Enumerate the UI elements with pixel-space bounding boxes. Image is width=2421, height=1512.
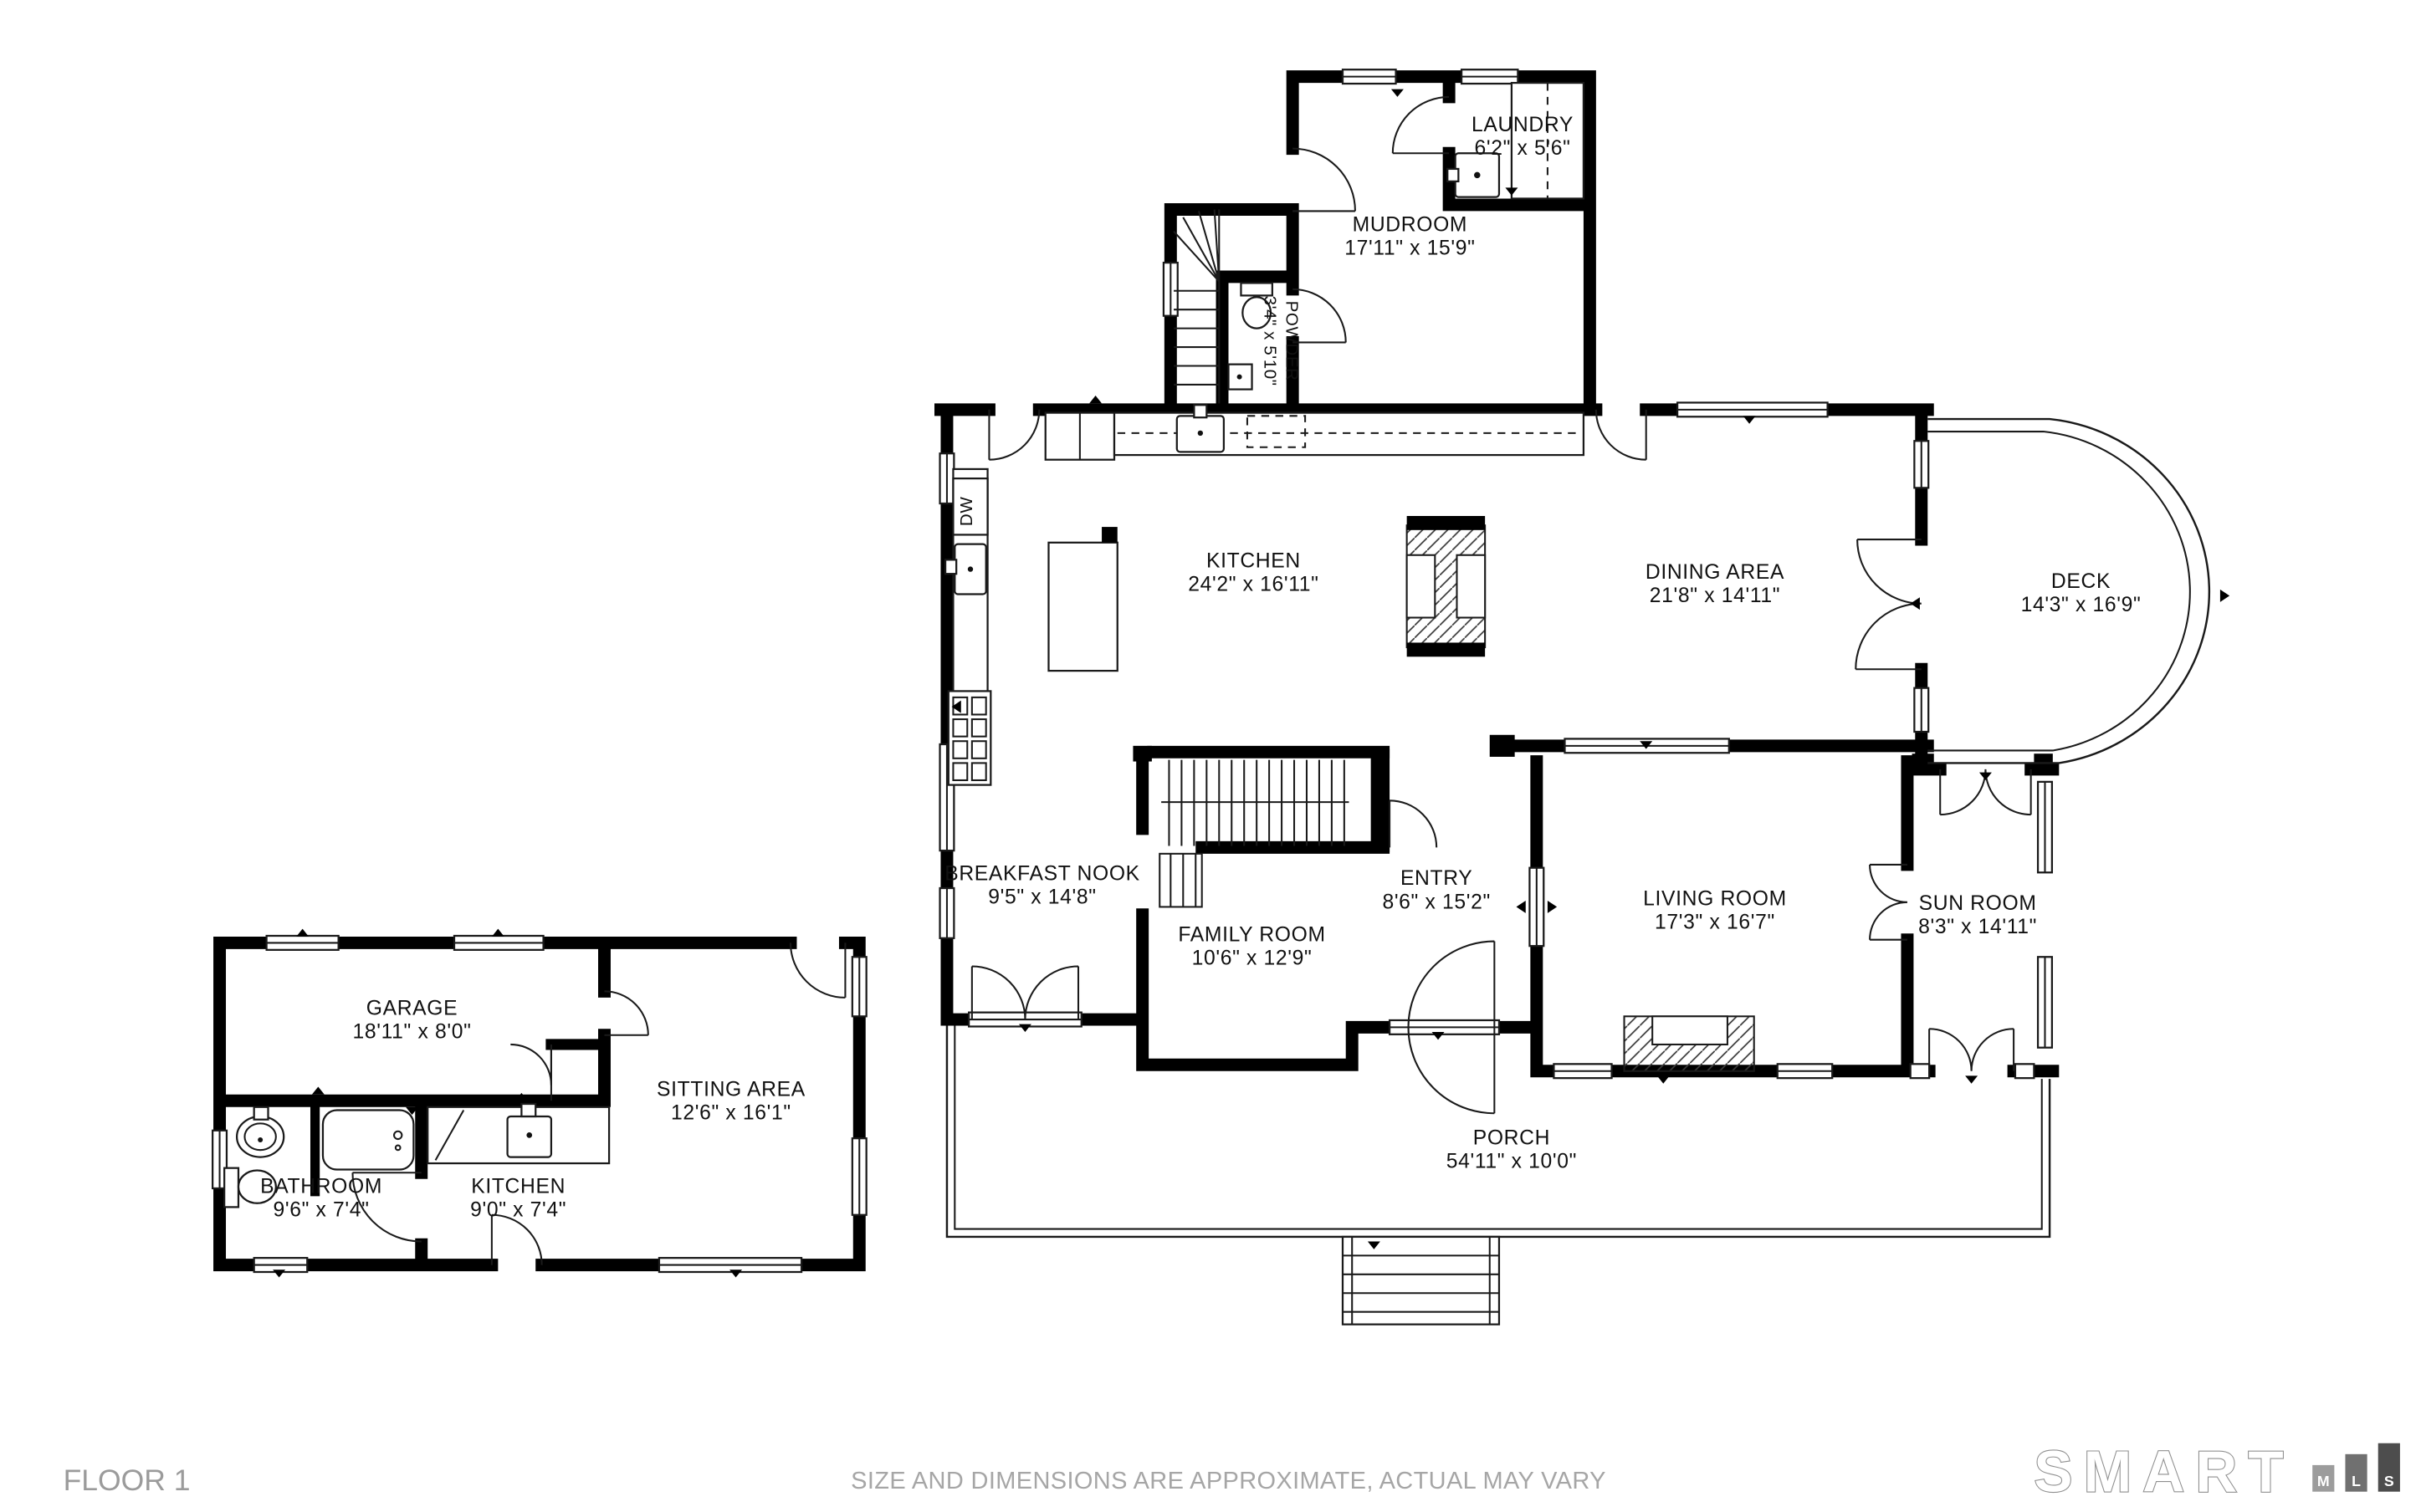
svg-text:DECK: DECK [2051,570,2111,593]
svg-text:BREAKFAST NOOK: BREAKFAST NOOK [944,863,1140,886]
window-icon [1914,688,1928,732]
svg-text:FAMILY ROOM: FAMILY ROOM [1178,924,1325,947]
door-arc [604,991,647,1034]
bathtub-icon [323,1110,413,1169]
window-icon [2015,1064,2034,1078]
svg-text:18'11" x 8'0": 18'11" x 8'0" [353,1020,472,1043]
floor-plan-page: DW [0,0,2421,1512]
window-icon [454,936,544,950]
room-label-bathroom: BATHROOM 9'6" x 7'4" [260,1176,382,1222]
cased-opening [1529,868,1543,946]
porch-steps-icon [1343,1237,1499,1325]
svg-text:9'0" x 7'4": 9'0" x 7'4" [470,1199,566,1222]
floor-label: FLOOR 1 [64,1463,191,1497]
window-icon [940,888,955,938]
dishwasher-icon: DW [953,478,987,534]
svg-text:KITCHEN: KITCHEN [1206,550,1301,573]
disclaimer-text: SIZE AND DIMENSIONS ARE APPROXIMATE, ACT… [851,1468,1606,1494]
svg-text:DINING AREA: DINING AREA [1646,561,1784,584]
room-label-kitchen: KITCHEN 24'2" x 16'11" [1188,550,1318,596]
svg-text:3'4" x 5'10": 3'4" x 5'10" [1261,296,1280,386]
svg-text:LIVING ROOM: LIVING ROOM [1643,888,1787,911]
room-label-garage: GARAGE 18'11" x 8'0" [353,997,472,1043]
french-doors-sunroom [1870,865,1907,940]
svg-text:17'3" x 16'7": 17'3" x 16'7" [1655,912,1775,934]
window-icon [2038,957,2052,1047]
smart-wordmark: SMART [2034,1439,2294,1504]
main-staircase-icon [1161,760,1349,846]
room-label-sitting-area: SITTING AREA 12'6" x 16'1" [657,1079,806,1125]
svg-text:54'11" x 10'0": 54'11" x 10'0" [1446,1151,1577,1173]
svg-text:17'11" x 15'9": 17'11" x 15'9" [1344,238,1475,260]
bathroom-sink-icon [237,1107,284,1157]
svg-text:LAUNDRY: LAUNDRY [1472,114,1574,136]
svg-text:POWDER: POWDER [1282,301,1302,381]
svg-text:6'2" x 5'6": 6'2" x 5'6" [1474,137,1570,160]
room-label-dining: DINING AREA 21'8" x 14'11" [1646,561,1784,607]
svg-text:21'8" x 14'11": 21'8" x 14'11" [1650,585,1780,607]
door-arc [1596,410,1646,460]
chimney-fireplace-icon [1407,516,1485,656]
smartmls-logo: SMART M L S [2034,1439,2400,1504]
room-label-kitchen2: KITCHEN 9'0" x 7'4" [470,1176,566,1222]
mls-letter-l: L [2352,1473,2361,1489]
svg-text:SUN ROOM: SUN ROOM [1919,892,2037,915]
svg-text:14'3" x 16'9": 14'3" x 16'9" [2021,594,2142,616]
room-label-sun-room: SUN ROOM 8'3" x 14'11" [1918,892,2037,938]
room-label-powder: POWDER 3'4" x 5'10" [1261,296,1302,386]
svg-text:MUDROOM: MUDROOM [1353,214,1468,237]
door-arc [1393,97,1449,153]
room-label-living-room: LIVING ROOM 17'3" x 16'7" [1643,888,1787,934]
wall-post [1490,735,1515,757]
kitchen-island-icon [1048,527,1117,671]
living-room-fireplace-icon [1625,1016,1754,1070]
mls-letter-m: M [2317,1473,2330,1489]
door-arc [492,1215,542,1265]
room-label-deck: DECK 14'3" x 16'9" [2021,570,2142,616]
svg-text:10'6" x 12'9": 10'6" x 12'9" [1192,948,1313,970]
window-icon [1553,1064,1611,1078]
window-icon [2038,782,2052,872]
door-arc [1292,149,1355,212]
mls-letter-s: S [2384,1473,2394,1489]
window-icon [1461,69,1518,84]
floor-plan-svg: DW [0,0,2421,1512]
svg-text:PORCH: PORCH [1473,1127,1550,1150]
svg-text:12'6" x 16'1": 12'6" x 16'1" [671,1102,791,1125]
svg-text:BATHROOM: BATHROOM [260,1176,382,1198]
window-icon [940,453,955,503]
room-labels: LAUNDRY 6'2" x 5'6" MUDROOM 17'11" x 15'… [260,114,2141,1222]
doors-main [972,97,2031,1113]
svg-text:9'5" x 14'8": 9'5" x 14'8" [988,886,1096,909]
french-doors-breakfast [972,966,1078,1019]
basement-stair-stub [1159,854,1201,907]
wall-post [1133,746,1151,762]
door-arc [989,410,1039,460]
dishwasher-label: DW [957,497,976,526]
svg-text:KITCHEN: KITCHEN [471,1176,566,1198]
window-icon [1911,1064,1929,1078]
window-icon [1343,69,1396,84]
svg-text:SITTING AREA: SITTING AREA [657,1079,806,1101]
footer: FLOOR 1 SIZE AND DIMENSIONS ARE APPROXIM… [64,1439,2400,1504]
door-threshold [1390,1020,1499,1034]
svg-text:8'3" x 14'11": 8'3" x 14'11" [1918,916,2037,938]
kitchen2-fixtures [427,1104,609,1163]
svg-text:ENTRY: ENTRY [1400,867,1472,890]
door-arc [791,942,845,997]
french-doors-deck [1855,539,1922,669]
window-icon [1677,402,1827,416]
window-icon [852,957,867,1016]
room-label-breakfast-nook: BREAKFAST NOOK 9'5" x 14'8" [944,863,1140,909]
svg-text:24'2" x 16'11": 24'2" x 16'11" [1188,574,1318,596]
window-icon [1914,441,1928,488]
window-icon [267,936,339,950]
window-icon [1164,263,1178,316]
room-label-porch: PORCH 54'11" x 10'0" [1446,1127,1577,1173]
room-label-family-room: FAMILY ROOM 10'6" x 12'9" [1178,924,1325,970]
powder-sink-icon [1229,365,1252,390]
french-doors-porch-sun [1929,1029,2014,1070]
svg-text:8'6" x 15'2": 8'6" x 15'2" [1382,891,1490,913]
room-label-entry: ENTRY 8'6" x 15'2" [1382,867,1490,913]
door-arc [510,1045,551,1085]
svg-text:GARAGE: GARAGE [366,997,458,1019]
stair-post [1371,749,1390,852]
svg-text:9'6" x 7'4": 9'6" x 7'4" [274,1199,370,1222]
door-arc [1390,800,1436,847]
upper-staircase-icon [1174,210,1219,404]
room-label-laundry: LAUNDRY 6'2" x 5'6" [1472,114,1574,160]
window-icon [852,1138,867,1215]
window-icon [1778,1064,1832,1078]
room-label-mudroom: MUDROOM 17'11" x 15'9" [1344,214,1475,260]
